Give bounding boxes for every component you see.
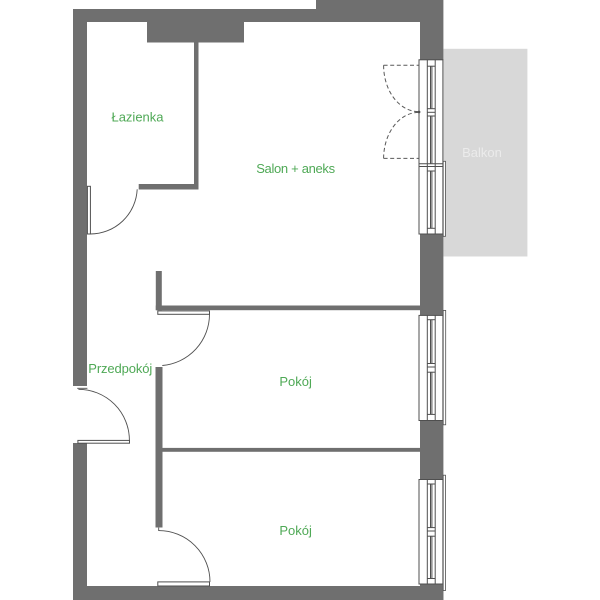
svg-text:Pokój: Pokój — [279, 374, 312, 389]
svg-text:Pokój: Pokój — [279, 523, 312, 538]
svg-text:Przedpokój: Przedpokój — [88, 361, 152, 376]
svg-text:Salon + aneks: Salon + aneks — [256, 161, 335, 176]
svg-text:Łazienka: Łazienka — [111, 109, 164, 124]
svg-text:Balkon: Balkon — [462, 145, 502, 160]
